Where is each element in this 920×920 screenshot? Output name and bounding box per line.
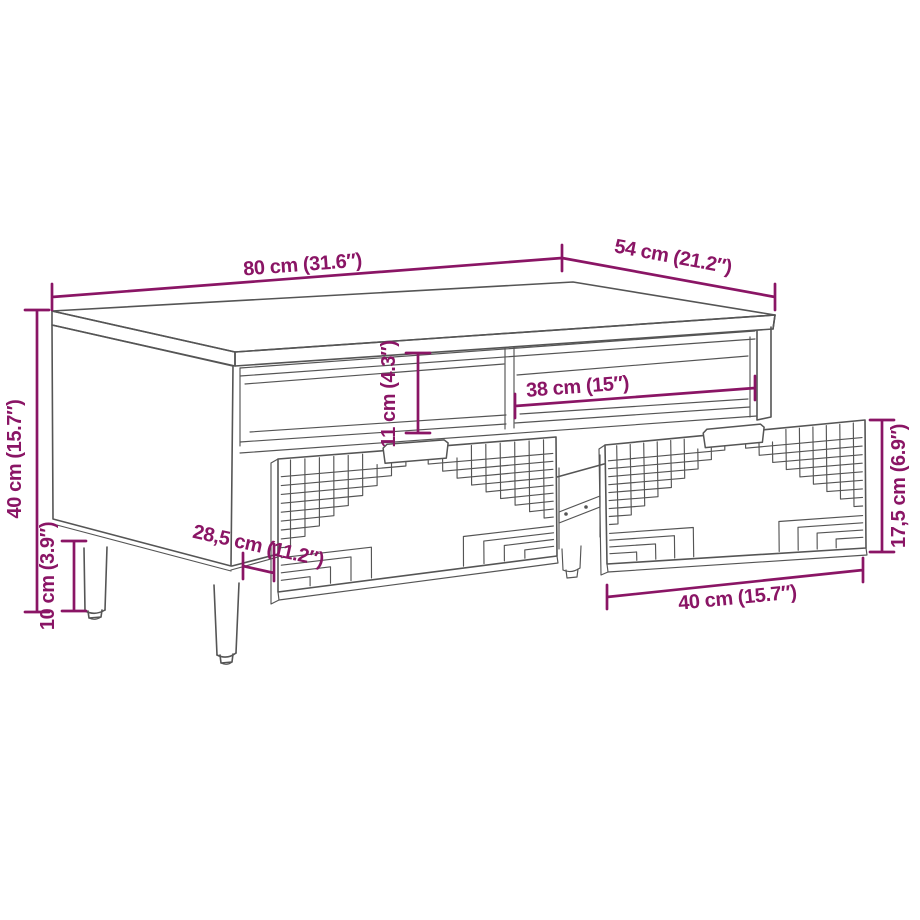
dimension-shelf-opening-width: 38 cm (15″) [515, 372, 755, 418]
dimension-drawer-depth: 28,5 cm (11.2″) [191, 521, 326, 581]
shelf-divider [505, 347, 514, 429]
dimension-label-overall-height: 40 cm (15.7″) [4, 400, 26, 519]
dimension-label-drawer-front-height: 17,5 cm (6.9″) [888, 424, 910, 548]
shelf-compartments [240, 356, 750, 442]
dimension-label-drawer-depth: 28,5 cm (11.2″) [191, 521, 326, 571]
dimension-top-depth: 54 cm (21.2″) [562, 235, 775, 310]
screw-icon [564, 512, 568, 516]
right-side-panel [757, 327, 771, 420]
front-left-leg [84, 547, 107, 619]
screw-icon [584, 505, 588, 509]
middle-leg [562, 546, 581, 578]
drawer-slide-rail [559, 455, 600, 549]
legs [84, 546, 581, 664]
right-drawer-handle [703, 424, 764, 448]
furniture-dimension-diagram: 80 cm (31.6″) 54 cm (21.2″) 40 cm (15.7″… [0, 0, 920, 920]
right-drawer [599, 420, 867, 575]
dimension-label-shelf-opening-height: 11 cm (4.3″) [378, 340, 400, 447]
dimension-label-leg-height: 10 cm (3.9″) [37, 522, 59, 630]
front-center-leg [214, 583, 239, 664]
line-art-canvas: 80 cm (31.6″) 54 cm (21.2″) 40 cm (15.7″… [0, 0, 920, 920]
dimension-top-width: 80 cm (31.6″) [52, 245, 562, 310]
dimension-drawer-front-height: 17,5 cm (6.9″) [870, 420, 910, 552]
dimension-annotations: 80 cm (31.6″) 54 cm (21.2″) 40 cm (15.7″… [4, 235, 910, 630]
left-drawer [271, 437, 558, 604]
dimension-label-top-depth: 54 cm (21.2″) [613, 235, 734, 278]
dimension-drawer-width: 40 cm (15.7″) [607, 558, 863, 615]
dimension-leg-height: 10 cm (3.9″) [37, 522, 86, 630]
